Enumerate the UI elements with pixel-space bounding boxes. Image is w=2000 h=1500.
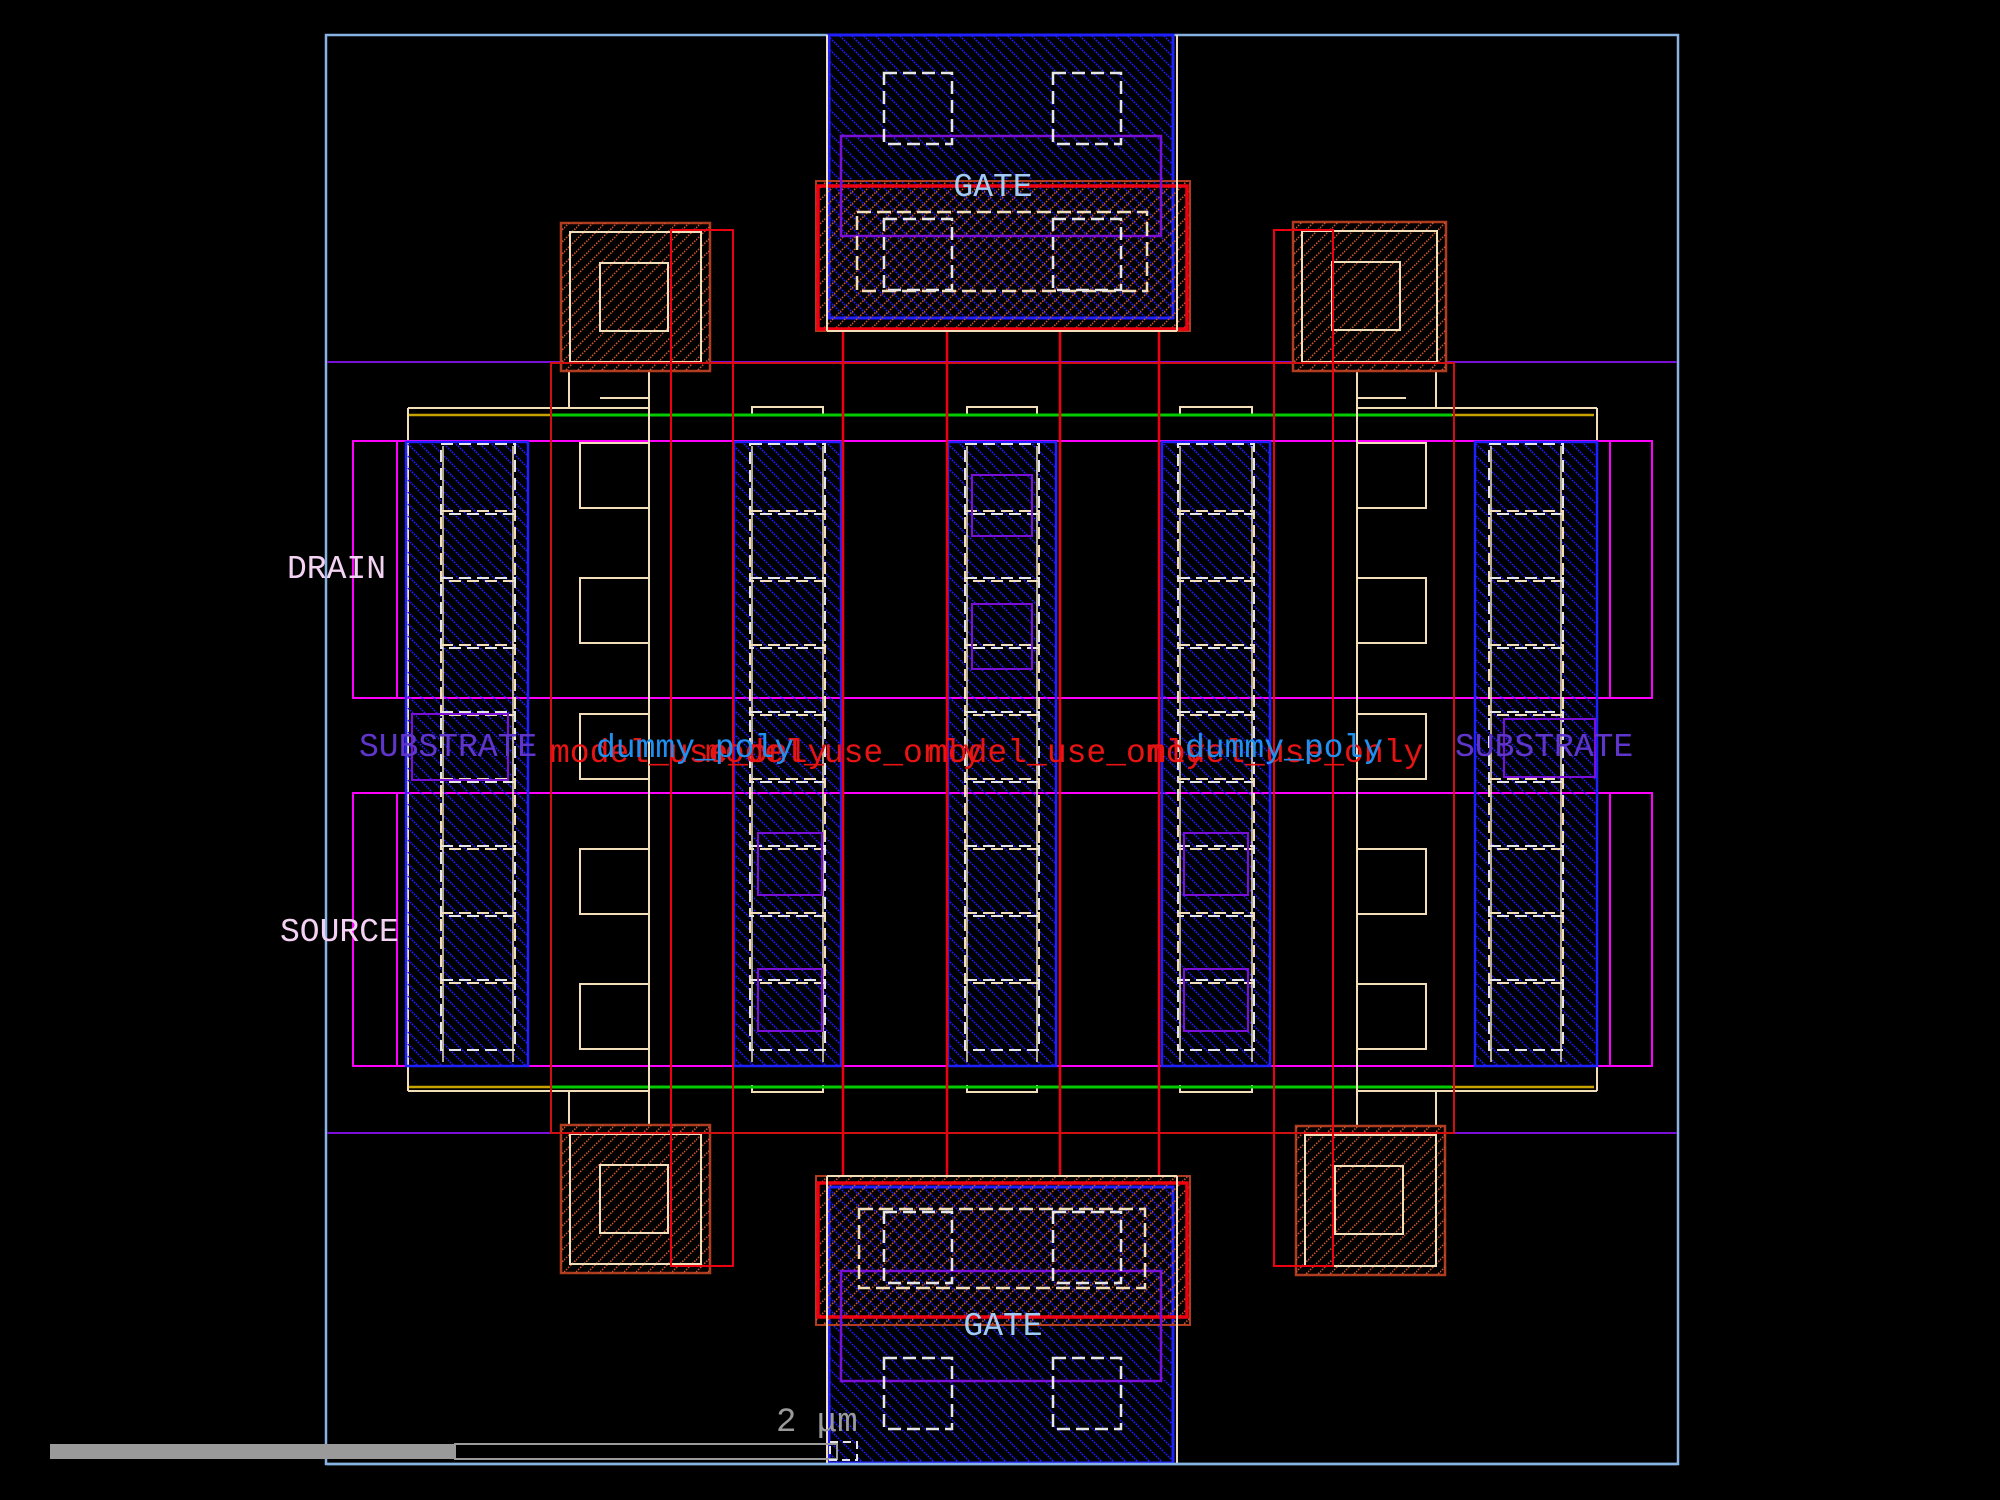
- svg-text:SOURCE: SOURCE: [280, 914, 399, 951]
- svg-text:GATE: GATE: [953, 169, 1032, 206]
- svg-text:dummy_poly: dummy_poly: [1185, 730, 1383, 767]
- svg-text:GATE: GATE: [963, 1308, 1042, 1345]
- svg-text:SUBSTRATE: SUBSTRATE: [1455, 729, 1633, 766]
- svg-text:2 μm: 2 μm: [776, 1404, 858, 1442]
- svg-text:dummy_poly: dummy_poly: [596, 730, 794, 767]
- svg-text:SUBSTRATE: SUBSTRATE: [359, 729, 537, 766]
- svg-text:DRAIN: DRAIN: [287, 551, 386, 588]
